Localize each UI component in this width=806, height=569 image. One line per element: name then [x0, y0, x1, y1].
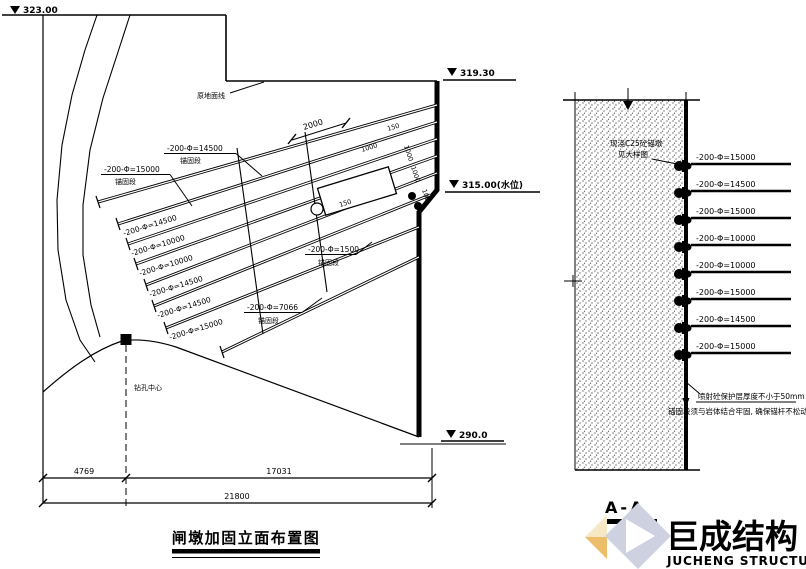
- ground-surface-line: [43, 340, 419, 437]
- section-anchors: -200-Φ=15000 -200-Φ=14500 -200-Φ=15000 -…: [674, 153, 791, 361]
- dim-100: 100: [420, 188, 431, 202]
- dim-2000-text: 2000: [302, 117, 324, 132]
- leader-label-15000: -200-Φ=15000 锚固段: [101, 165, 192, 206]
- bottom-note-line1: 喷射砼保护层厚度不小于50mm: [698, 391, 805, 401]
- top-note-line1: 现浇C25砼锚墩: [610, 138, 663, 148]
- leader-seg-4: 锚固段: [318, 258, 339, 267]
- anchor-label-5: -200-Φ=14500: [156, 295, 212, 320]
- drawing-sheet: 2000 1000 1000 1000 150 150 100 -200-Φ=1…: [0, 0, 806, 569]
- level-marker-base: 290.0: [441, 430, 504, 441]
- anchor-label-6: -200-Φ=15000: [168, 317, 224, 342]
- anchor-label-4: -200-Φ=14500: [148, 274, 204, 299]
- anchor-label-2: -200-Φ=10000: [130, 233, 186, 258]
- elevation-triangle-icon: [10, 6, 20, 14]
- dim-right: 17031: [266, 467, 291, 476]
- section-anchor-label-6: -200-Φ=15000: [696, 288, 756, 297]
- elevation-view: 2000 1000 1000 1000 150 150 100 -200-Φ=1…: [2, 6, 540, 558]
- level-marker-platform: 319.30: [443, 68, 516, 80]
- anchor-label-1: -200-Φ=14500: [122, 213, 178, 238]
- dim-1000a: 1000: [360, 141, 378, 153]
- page-title: 闸墩加固立面布置图: [172, 529, 321, 547]
- level-mid-value: 315.00(水位): [462, 179, 523, 191]
- section-anchor-label-8: -200-Φ=15000: [696, 342, 756, 351]
- leader-seg-2: 锚固段: [115, 177, 136, 186]
- leader-seg-1: 锚固段: [180, 156, 201, 165]
- section-bottom-note: 喷射砼保护层厚度不小于50mm 锚固段须与岩体结合牢固, 确保锚杆不松动: [668, 382, 806, 416]
- anchor-label-lines: [691, 164, 791, 353]
- dim-total: 21800: [224, 492, 249, 501]
- ground-line-callout: 原地面线: [197, 82, 264, 100]
- elevation-triangle-icon: [446, 430, 456, 438]
- section-anchor-labels: -200-Φ=15000 -200-Φ=14500 -200-Φ=15000 -…: [696, 153, 756, 351]
- leader-spec-3: -200-Φ=7066: [247, 303, 298, 312]
- bottom-note-line2: 锚固段须与岩体结合牢固, 确保锚杆不松动: [668, 406, 806, 416]
- structure-outline: [2, 15, 506, 503]
- logo-name-en: JUCHENG STRUCTURE: [666, 554, 806, 568]
- dim-left: 4769: [74, 467, 94, 476]
- section-anchor-label-4: -200-Φ=10000: [696, 234, 756, 243]
- level-marker-mid: 315.00(水位): [445, 179, 540, 192]
- level-ground-value: 323.00: [23, 6, 58, 16]
- logo-name-cn: 巨成结构: [666, 517, 798, 556]
- section-anchor-label-5: -200-Φ=10000: [696, 261, 756, 270]
- anchor-spec-labels: -200-Φ=14500 -200-Φ=10000 -200-Φ=10000 -…: [122, 213, 224, 342]
- leader-label-1500: -200-Φ=1500 锚固段: [305, 242, 372, 267]
- top-note-line2: 见大样图: [618, 149, 648, 159]
- dim-1000c: 1000: [409, 165, 422, 183]
- elevation-title-block: 闸墩加固立面布置图: [172, 529, 321, 558]
- bearing-plate-detail: [311, 167, 422, 215]
- elevation-triangle-icon: [447, 68, 457, 76]
- level-base-value: 290.0: [459, 431, 487, 441]
- leader-spec-4: -200-Φ=1500: [308, 245, 359, 254]
- slope-contour-lines: [57, 15, 130, 362]
- section-anchor-label-1: -200-Φ=15000: [696, 153, 756, 162]
- section-anchor-label-2: -200-Φ=14500: [696, 180, 756, 189]
- ground-line-label: 原地面线: [197, 91, 225, 100]
- leader-spec-2: -200-Φ=15000: [104, 165, 160, 174]
- section-view: -200-Φ=15000 -200-Φ=14500 -200-Φ=15000 -…: [563, 88, 806, 524]
- dim-150a: 150: [386, 122, 400, 133]
- anchor-label-3: -200-Φ=10000: [138, 253, 194, 278]
- leader-seg-3: 锚固段: [258, 316, 279, 325]
- elevation-triangle-icon: [449, 180, 459, 188]
- section-anchor-label-7: -200-Φ=14500: [696, 315, 756, 324]
- borehole-center: 钻孔中心: [121, 334, 163, 506]
- bottom-dimensions: 4769 17031 21800: [39, 448, 436, 508]
- cad-drawing: 2000 1000 1000 1000 150 150 100 -200-Φ=1…: [0, 0, 806, 569]
- section-anchor-label-3: -200-Φ=15000: [696, 207, 756, 216]
- leader-spec-1: -200-Φ=14500: [167, 144, 223, 153]
- borehole-center-label: 钻孔中心: [134, 383, 162, 392]
- level-platform-value: 319.30: [460, 69, 495, 79]
